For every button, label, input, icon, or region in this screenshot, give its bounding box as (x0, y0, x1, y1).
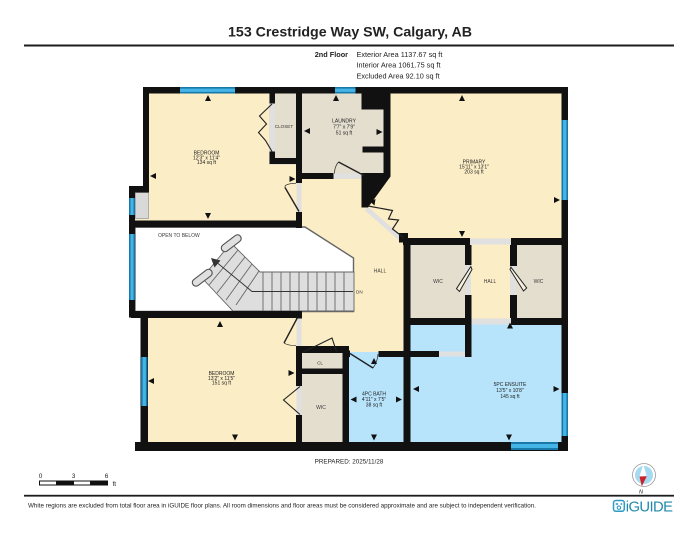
svg-text:51 sq ft: 51 sq ft (336, 131, 353, 137)
svg-text:DN: DN (356, 290, 363, 295)
svg-text:N: N (639, 490, 643, 496)
svg-text:6: 6 (105, 473, 109, 480)
svg-text:145 sq ft: 145 sq ft (500, 394, 520, 400)
svg-text:ft: ft (113, 481, 117, 488)
svg-text:153 Crestridge Way SW, Calgary: 153 Crestridge Way SW, Calgary, AB (228, 25, 472, 41)
svg-text:WIC: WIC (433, 279, 443, 285)
svg-text:203 sq ft: 203 sq ft (464, 170, 484, 176)
svg-text:CLOSET: CLOSET (275, 124, 294, 129)
svg-text:134 sq ft: 134 sq ft (197, 160, 217, 166)
svg-text:WIC: WIC (316, 405, 326, 411)
svg-text:WIC: WIC (534, 279, 544, 285)
svg-text:3: 3 (72, 473, 76, 480)
svg-text:0: 0 (39, 473, 43, 480)
svg-text:Interior Area 1061.75 sq ft: Interior Area 1061.75 sq ft (357, 61, 441, 70)
svg-text:2nd Floor: 2nd Floor (315, 50, 348, 59)
svg-text:OPEN TO BELOW: OPEN TO BELOW (158, 233, 200, 239)
svg-text:151 sq ft: 151 sq ft (212, 381, 232, 387)
svg-text:CL: CL (317, 361, 323, 366)
svg-text:HALL: HALL (374, 269, 387, 275)
svg-text:PREPARED: 2025/11/28: PREPARED: 2025/11/28 (315, 459, 384, 466)
svg-text:HALL: HALL (484, 279, 497, 285)
svg-text:38 sq ft: 38 sq ft (366, 403, 383, 409)
svg-text:Exterior Area 1137.67 sq ft: Exterior Area 1137.67 sq ft (357, 50, 443, 59)
svg-text:iGUIDE: iGUIDE (626, 500, 673, 516)
svg-text:Excluded Area 92.10 sq ft: Excluded Area 92.10 sq ft (357, 71, 440, 80)
svg-text:White regions are excluded fro: White regions are excluded from total fl… (28, 503, 536, 510)
